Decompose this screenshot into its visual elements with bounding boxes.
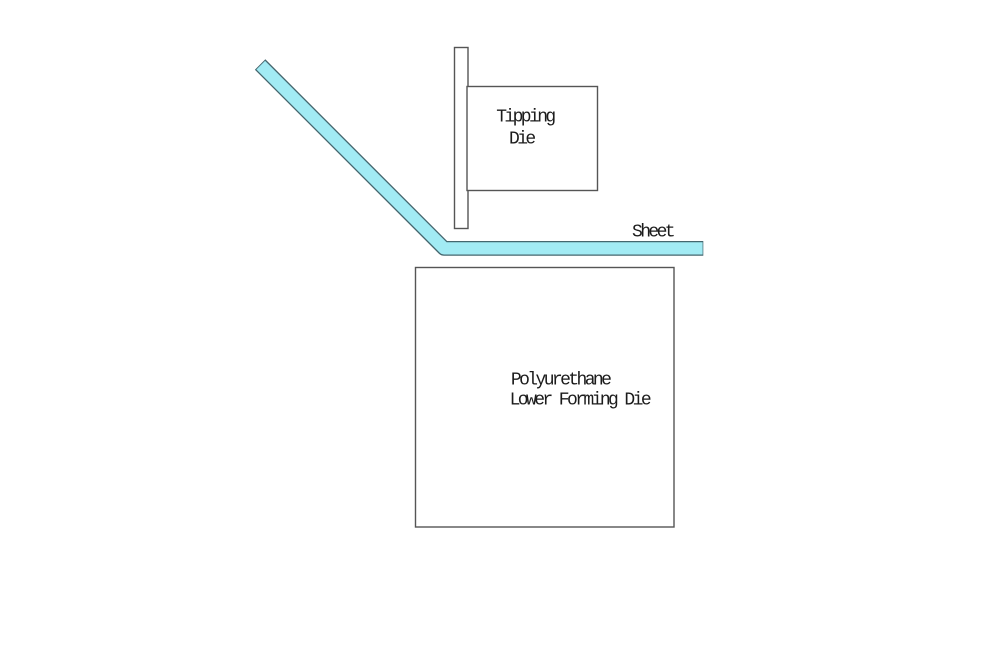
svg-text:Tipping: Tipping xyxy=(496,107,555,127)
svg-text:Polyurethane: Polyurethane xyxy=(511,371,611,391)
svg-text:Lower Forming Die: Lower Forming Die xyxy=(510,391,651,411)
svg-text:Die: Die xyxy=(509,129,535,149)
svg-text:Sheet: Sheet xyxy=(632,223,674,243)
